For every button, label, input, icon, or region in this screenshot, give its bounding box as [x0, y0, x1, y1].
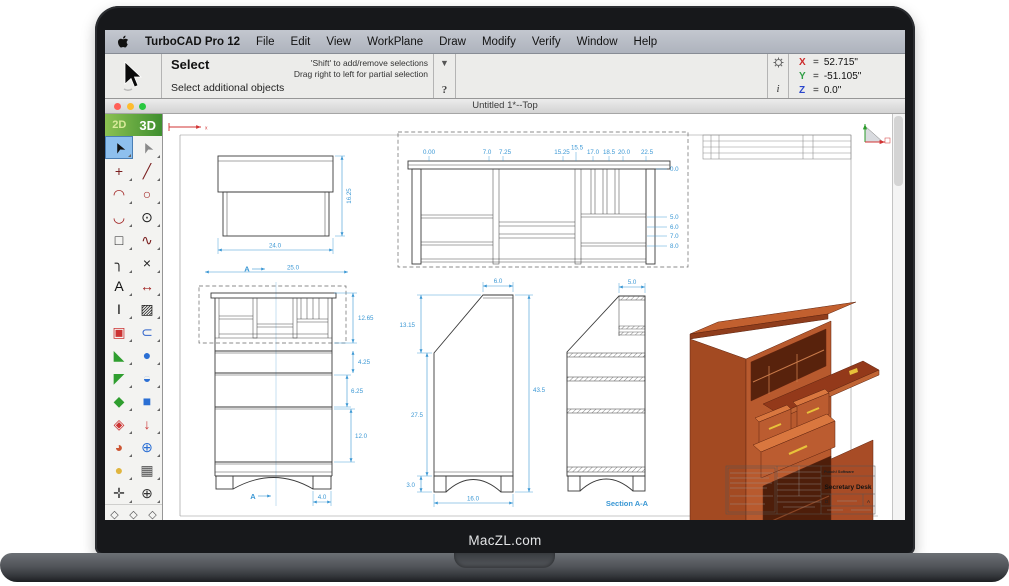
vertical-dimension-tool[interactable]: I	[105, 297, 133, 320]
dim-label: 6.0	[494, 278, 503, 285]
window-title: Untitled 1*--Top	[472, 100, 537, 111]
sphere-tool[interactable]: ●	[133, 343, 161, 366]
tool-hints: 'Shift' to add/remove selections Drag ri…	[294, 57, 428, 94]
help-icon[interactable]: ?	[442, 84, 448, 96]
rotate-3d-tool-icon: ◤	[114, 371, 125, 385]
dim-label: 3.0	[406, 482, 415, 489]
view-cube-wire-3-icon: ◇	[148, 510, 156, 521]
select-open-tool-icon: ➤	[138, 139, 156, 156]
circle-tool[interactable]: ○	[133, 182, 161, 205]
front-view: 12.65 4.25 6.25 12.0 4	[199, 282, 374, 506]
window-title-bar[interactable]: Untitled 1*--Top	[105, 99, 905, 114]
dim-label: 6.25	[351, 388, 364, 395]
mode-2d-button[interactable]: 2D	[105, 119, 133, 131]
dimension-tool[interactable]: ↔	[133, 274, 161, 297]
dim-label: 24.0	[269, 243, 282, 250]
select-cursor-icon	[120, 60, 146, 92]
dim-label: 43.5	[533, 387, 546, 394]
curve-tool[interactable]: ◡	[105, 205, 133, 228]
ellipse-tool[interactable]: ⊙	[133, 205, 161, 228]
snap-magnet-tool[interactable]: ⊂	[133, 320, 161, 343]
traffic-lights	[114, 103, 146, 110]
scrollbar-thumb[interactable]	[894, 116, 903, 186]
tool-options-bar: Select Select additional objects 'Shift'…	[105, 54, 905, 99]
dim-label: 5.0	[628, 279, 637, 286]
arc-tool[interactable]: ◠	[105, 182, 133, 205]
laptop-shell: TurboCAD Pro 12 FileEditViewWorkPlaneDra…	[95, 6, 915, 555]
trim-tool-icon: ×	[143, 256, 151, 270]
svg-text:15.5: 15.5	[571, 145, 584, 152]
detail-view: 0.00 7.0 7.25 15.25 15.5 17.0 18.5 20.0 …	[398, 132, 688, 267]
dim-label: 25.0	[287, 265, 300, 272]
zoom-in-tool[interactable]: ⊕	[133, 481, 161, 504]
chevron-down-icon[interactable]: ▼	[440, 58, 449, 68]
menu-item-workplane[interactable]: WorkPlane	[367, 36, 423, 48]
fillet-tool[interactable]: ╮	[105, 251, 133, 274]
menu-bar: TurboCAD Pro 12 FileEditViewWorkPlaneDra…	[105, 30, 905, 54]
viewport-grid-tool-icon: ▦	[140, 463, 153, 477]
workplane-tool-icon: ◆	[114, 394, 125, 408]
point-tool[interactable]: +	[105, 159, 133, 182]
menu-item-edit[interactable]: Edit	[291, 36, 311, 48]
view-cube-wire-2[interactable]: ◇	[124, 505, 143, 520]
coordinate-row-z: Z=0.0"	[799, 85, 901, 96]
tool-status-text: Select additional objects	[171, 82, 284, 94]
svg-text:8.0: 8.0	[670, 243, 679, 250]
drawing-canvas[interactable]: x	[163, 114, 892, 520]
menu-item-window[interactable]: Window	[577, 36, 618, 48]
origin-axis-icon: x	[169, 123, 208, 132]
fillet-tool-icon: ╮	[115, 256, 123, 270]
screen: TurboCAD Pro 12 FileEditViewWorkPlaneDra…	[105, 30, 905, 520]
tool-title: Select	[171, 57, 284, 72]
section-view-label: Section A-A	[606, 499, 649, 508]
side-view: 6.0 13.15 27.5 3.0 43.	[399, 278, 545, 507]
coordinate-settings-cell: i	[768, 54, 789, 98]
pan-tool-icon: ✛	[113, 486, 125, 500]
minimize-button[interactable]	[127, 103, 134, 110]
svg-text:7.0: 7.0	[670, 233, 679, 240]
spline-tool-icon: ∿	[141, 233, 153, 247]
spline-tool[interactable]: ∿	[133, 228, 161, 251]
select-tool[interactable]: ➤	[105, 136, 133, 159]
laptop-base	[0, 553, 1009, 582]
title-block-title: Secretary Desk	[824, 484, 871, 491]
material-tool[interactable]: ●	[105, 458, 133, 481]
copy-tool-icon: ▣	[112, 325, 125, 339]
rectangle-tool[interactable]: □	[105, 228, 133, 251]
tool-options-dropdown[interactable]: ▼ ?	[434, 54, 456, 98]
coordinate-readout: X=52.715"Y=-51.105"Z=0.0"	[789, 54, 905, 98]
apple-menu-icon[interactable]	[117, 35, 129, 49]
gear-icon[interactable]	[773, 57, 784, 71]
top-view: 16.25 24.0 25.0 A	[205, 156, 353, 274]
svg-text:17.0: 17.0	[587, 149, 600, 156]
laptop-notch	[454, 553, 555, 568]
dim-label: 4.25	[358, 359, 371, 366]
svg-text:6.0: 6.0	[670, 224, 679, 231]
view-cube-wire-2-icon: ◇	[129, 510, 137, 521]
boolean-add-tool-icon: ⊕	[141, 440, 153, 454]
workplane-tool[interactable]: ◆	[105, 389, 133, 412]
work-area: 2D 3D ➤➤+╱◠○◡⊙□∿╮×A↔I▨▣⊂◣●◤◒◆■◈↓◕⊕●▦✛⊕ ◇…	[105, 114, 905, 520]
dim-label: 16.0	[467, 496, 480, 503]
revolve-tool-icon: ◕	[115, 440, 123, 454]
rectangle-tool-icon: □	[115, 233, 123, 247]
snap-magnet-tool-icon: ⊂	[141, 325, 153, 339]
dim-label: 16.25	[346, 188, 353, 204]
extrude-tool-icon: ↓	[144, 417, 151, 431]
menu-item-file[interactable]: File	[256, 36, 275, 48]
title-block-company: Punch! Software	[824, 470, 854, 474]
svg-text:x: x	[205, 126, 208, 132]
ellipse-tool-icon: ⊙	[141, 210, 153, 224]
svg-text:0.00: 0.00	[423, 149, 436, 156]
menu-item-verify[interactable]: Verify	[532, 36, 561, 48]
viewport-grid-tool[interactable]: ▦	[133, 458, 161, 481]
curve-tool-icon: ◡	[113, 210, 125, 224]
mode-3d-button[interactable]: 3D	[133, 118, 161, 133]
zoom-button[interactable]	[139, 103, 146, 110]
layer-stack-tool-icon: ◈	[114, 417, 125, 431]
dimension-tool-icon: ↔	[140, 279, 154, 293]
menu-item-view[interactable]: View	[326, 36, 351, 48]
section-marker: A	[250, 492, 256, 501]
box-3d-tool-icon: ■	[143, 394, 151, 408]
svg-text:7.0: 7.0	[483, 149, 492, 156]
mesh-surface-tool-icon: ◣	[114, 348, 125, 362]
section-view: 5.0 Section A-A	[567, 279, 649, 508]
menu-item-app-name[interactable]: TurboCAD Pro 12	[145, 36, 240, 48]
svg-text:0.0: 0.0	[670, 166, 679, 173]
material-tool-icon: ●	[115, 463, 123, 477]
laptop-brand-text: MacZL.com	[95, 533, 915, 548]
svg-text:22.5: 22.5	[641, 149, 654, 156]
svg-text:20.0: 20.0	[618, 149, 631, 156]
extrude-tool[interactable]: ↓	[133, 412, 161, 435]
coordinate-row-y: Y=-51.105"	[799, 71, 901, 82]
select-tool-icon: ➤	[110, 139, 128, 156]
menu-item-help[interactable]: Help	[634, 36, 658, 48]
hatch-tool[interactable]: ▨	[133, 297, 161, 320]
text-tool[interactable]: A	[105, 274, 133, 297]
tool-palette: 2D 3D ➤➤+╱◠○◡⊙□∿╮×A↔I▨▣⊂◣●◤◒◆■◈↓◕⊕●▦✛⊕ ◇…	[105, 114, 163, 520]
menu-item-draw[interactable]: Draw	[439, 36, 466, 48]
copy-tool[interactable]: ▣	[105, 320, 133, 343]
tool-grid: ➤➤+╱◠○◡⊙□∿╮×A↔I▨▣⊂◣●◤◒◆■◈↓◕⊕●▦✛⊕	[105, 136, 162, 504]
zoom-in-tool-icon: ⊕	[141, 486, 153, 500]
trim-tool[interactable]: ×	[133, 251, 161, 274]
sphere-tool-icon: ●	[143, 348, 151, 362]
hatch-tool-icon: ▨	[140, 302, 153, 316]
info-icon[interactable]: i	[776, 83, 779, 95]
dim-label: 12.65	[358, 315, 374, 322]
svg-text:15.25: 15.25	[554, 149, 570, 156]
boolean-add-tool[interactable]: ⊕	[133, 435, 161, 458]
dome-tool[interactable]: ◒	[133, 366, 161, 389]
arc-tool-icon: ◠	[113, 187, 125, 201]
section-marker: A	[244, 265, 250, 274]
rotate-3d-tool[interactable]: ◤	[105, 366, 133, 389]
mode-switch: 2D 3D	[105, 114, 162, 136]
view-cube-wire-3[interactable]: ◇	[143, 505, 162, 520]
pan-tool[interactable]: ✛	[105, 481, 133, 504]
tool-options-main: Select Select additional objects 'Shift'…	[162, 54, 434, 98]
dim-label: 4.0	[318, 494, 327, 501]
dim-label: 12.0	[355, 433, 368, 440]
text-tool-icon: A	[114, 279, 123, 293]
select-open-tool[interactable]: ➤	[133, 136, 161, 159]
dim-label: 13.15	[399, 322, 415, 329]
mesh-surface-tool[interactable]: ◣	[105, 343, 133, 366]
coordinate-row-x: X=52.715"	[799, 57, 901, 68]
svg-text:18.5: 18.5	[603, 149, 616, 156]
tool-options-spacer	[456, 54, 768, 98]
view-cube-wire-1[interactable]: ◇	[105, 505, 124, 520]
revision-table	[703, 135, 851, 159]
menu-items: FileEditViewWorkPlaneDrawModifyVerifyWin…	[256, 36, 657, 48]
svg-text:5.0: 5.0	[670, 214, 679, 221]
circle-tool-icon: ○	[143, 187, 151, 201]
ucs-axis-icon	[865, 124, 890, 143]
menu-item-modify[interactable]: Modify	[482, 36, 516, 48]
view-cube-grid: ◇◇◇◆◇▦	[105, 504, 162, 520]
detail-right-dims: 0.0 5.0 6.0 7.0 8.0	[647, 166, 679, 250]
view-cube-wire-1-icon: ◇	[110, 510, 118, 521]
revolve-tool[interactable]: ◕	[105, 435, 133, 458]
line-tool[interactable]: ╱	[133, 159, 161, 182]
box-3d-tool[interactable]: ■	[133, 389, 161, 412]
point-tool-icon: +	[115, 164, 123, 178]
dim-label: 27.5	[411, 412, 424, 419]
detail-top-dims: 0.00 7.0 7.25 15.25 15.5 17.0 18.5 20.0 …	[423, 145, 654, 162]
vertical-scrollbar[interactable]	[892, 114, 905, 520]
line-tool-icon: ╱	[143, 164, 151, 178]
vertical-dimension-tool-icon: I	[117, 302, 121, 316]
tool-hint-line2: Drag right to left for partial selection	[294, 69, 428, 80]
layer-stack-tool[interactable]: ◈	[105, 412, 133, 435]
close-button[interactable]	[114, 103, 121, 110]
tool-hint-line1: 'Shift' to add/remove selections	[294, 58, 428, 69]
dome-tool-icon: ◒	[143, 371, 151, 385]
svg-text:7.25: 7.25	[499, 149, 512, 156]
active-tool-cell[interactable]	[105, 54, 162, 98]
title-block-rev: A	[867, 499, 870, 504]
